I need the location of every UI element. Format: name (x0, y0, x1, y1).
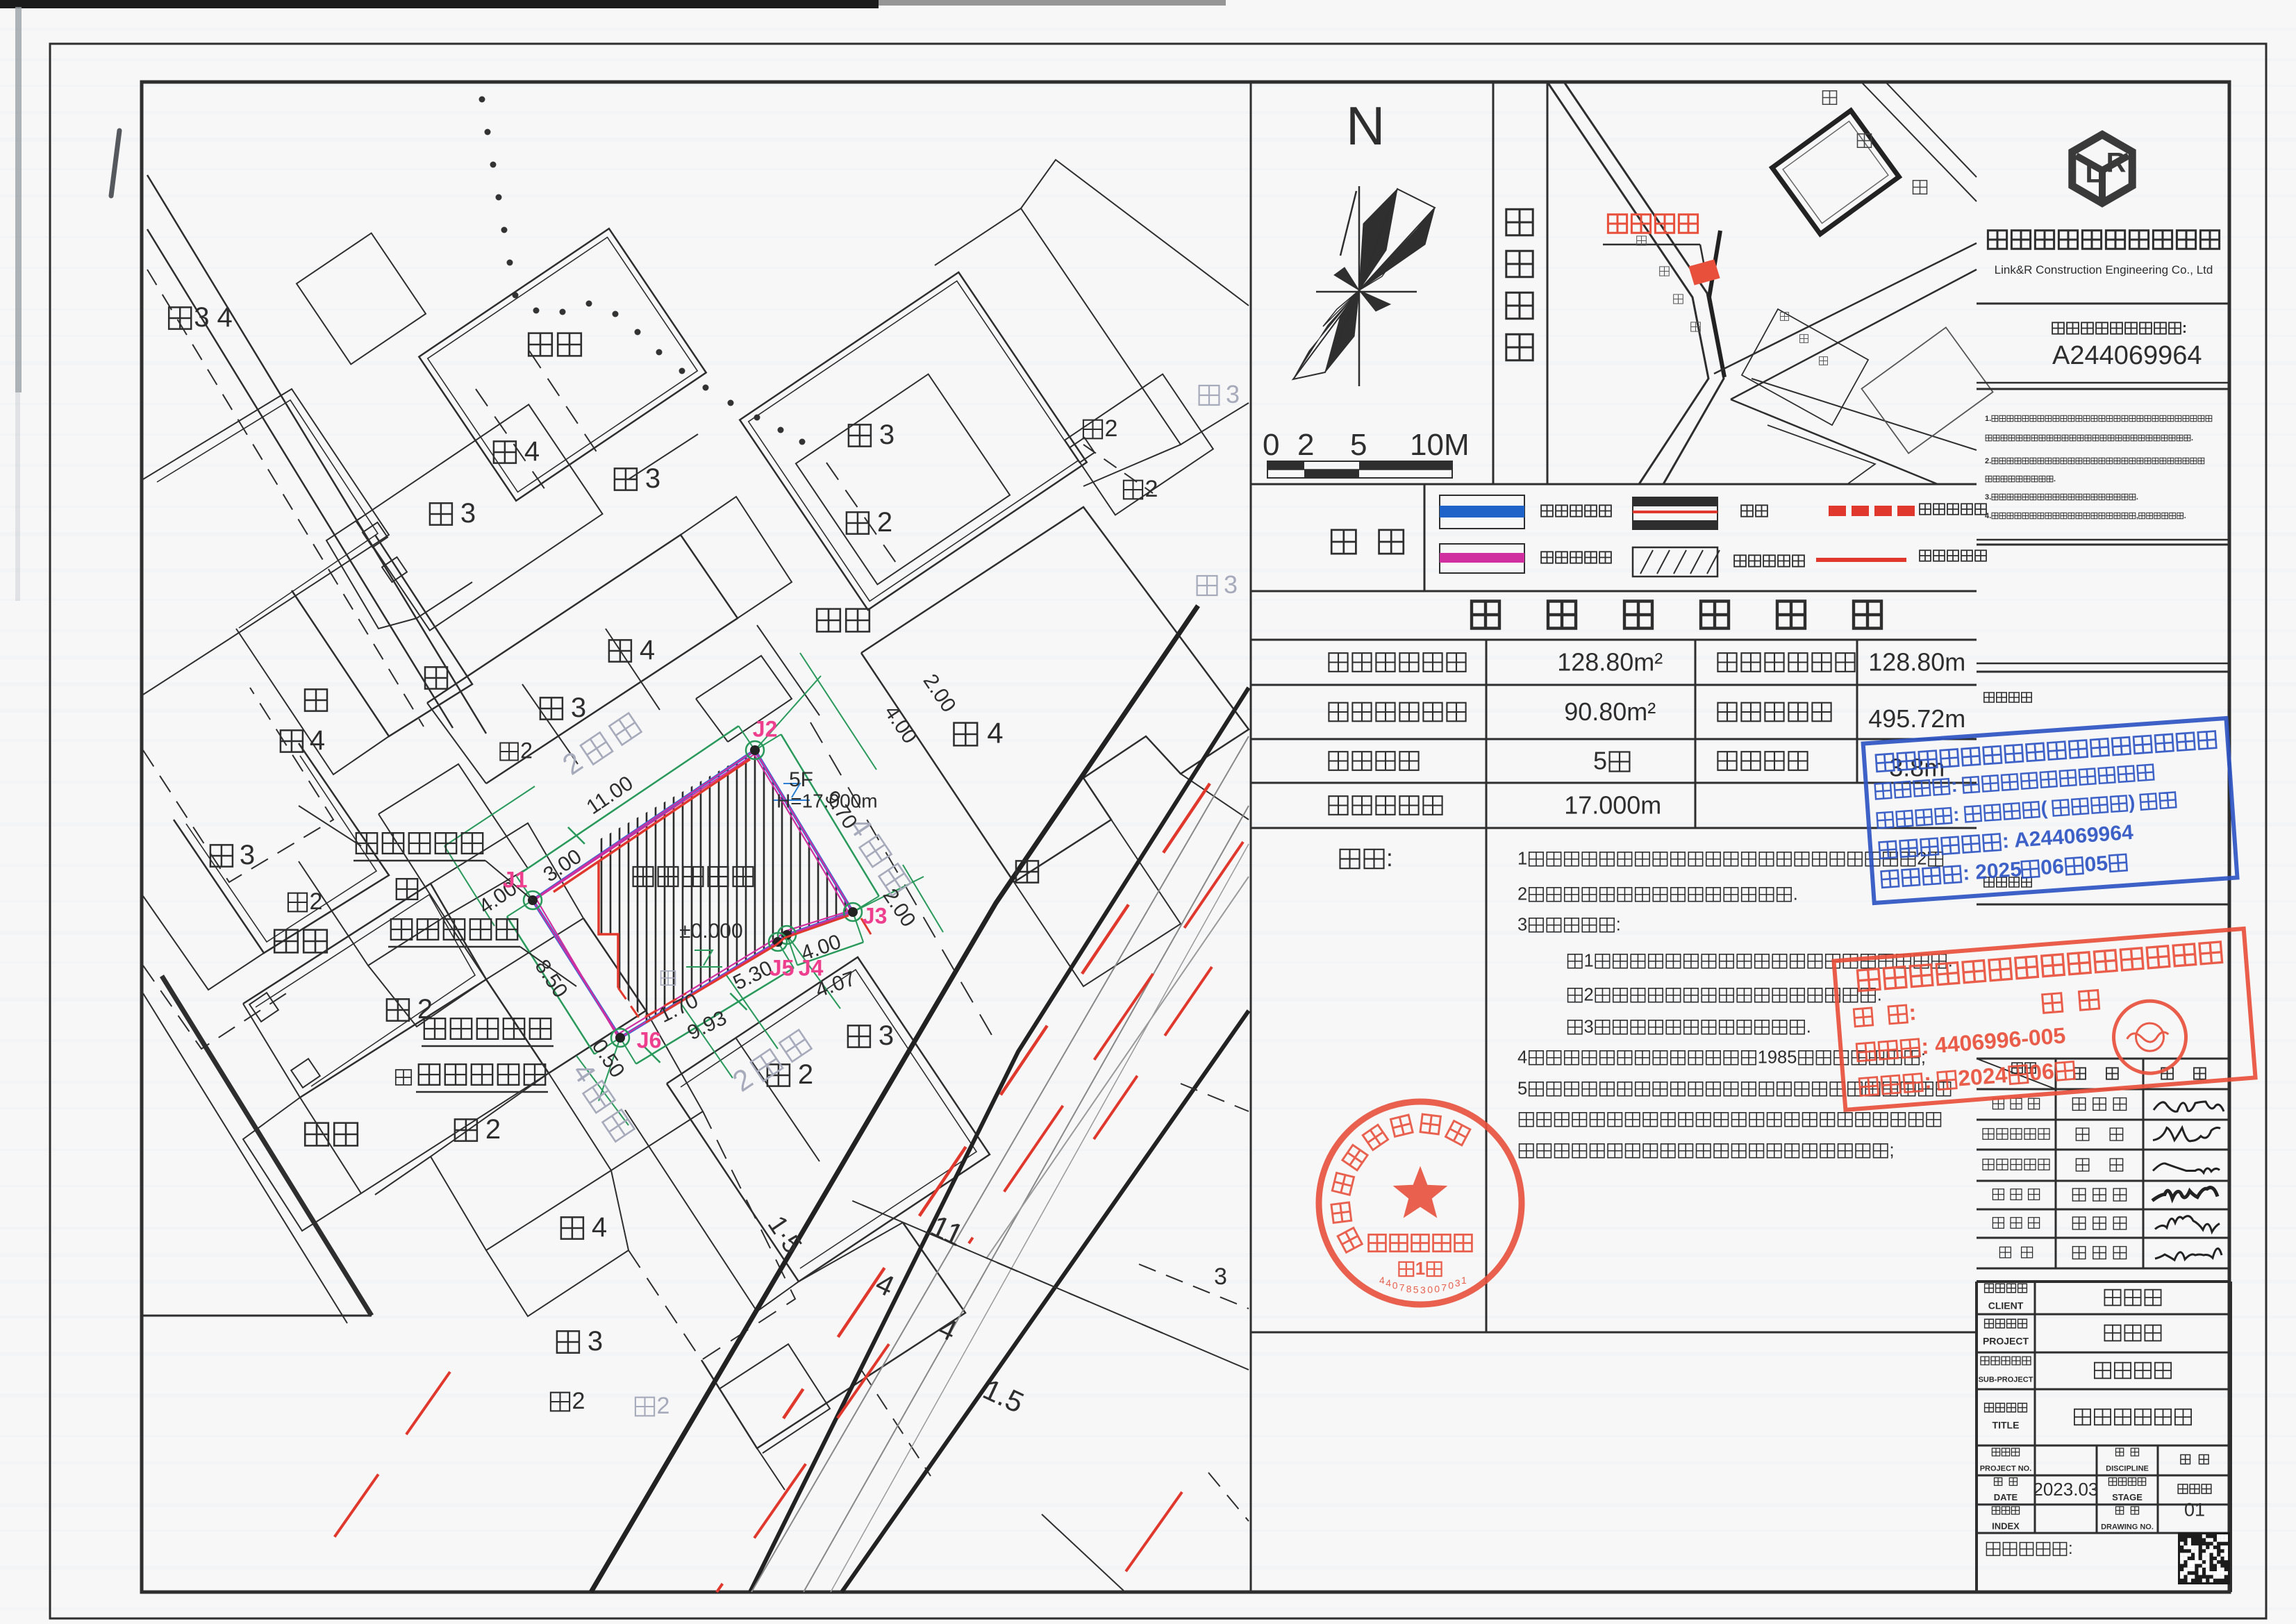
svg-text:DATE: DATE (1994, 1492, 2018, 1502)
svg-text:2: 2 (877, 507, 892, 538)
svg-text:J2: J2 (753, 717, 778, 742)
svg-text:Link&R Construction Engineerin: Link&R Construction Engineering Co., Ltd (1995, 263, 2213, 276)
svg-text:5: 5 (1413, 1284, 1419, 1295)
svg-text:3: 3 (879, 1020, 894, 1051)
svg-text:5F: 5F (789, 768, 813, 791)
svg-text:.: . (2054, 475, 2056, 483)
svg-text:H=17.000m: H=17.000m (776, 790, 878, 811)
svg-text:2: 2 (1297, 428, 1314, 462)
svg-text:3: 3 (1214, 1263, 1227, 1290)
svg-text:J4: J4 (799, 956, 824, 981)
svg-text:01: 01 (2184, 1500, 2205, 1521)
svg-text:J6: J6 (637, 1028, 662, 1053)
svg-text:R: R (2106, 148, 2127, 179)
svg-text:2.: 2. (1985, 457, 1991, 465)
svg-text:495.72m: 495.72m (1868, 704, 1965, 733)
svg-text:2: 2 (1517, 884, 1527, 904)
svg-text:0: 0 (1392, 1280, 1398, 1291)
svg-text:128.80m: 128.80m (1868, 647, 1965, 676)
svg-text:06: 06 (2029, 1059, 2055, 1086)
svg-text:4: 4 (640, 635, 655, 665)
svg-text:2: 2 (520, 738, 533, 763)
svg-text:.: . (2184, 512, 2186, 520)
svg-text:3: 3 (645, 463, 660, 494)
svg-text:2023.03: 2023.03 (2033, 1479, 2098, 1500)
svg-text:1.: 1. (1985, 415, 1991, 423)
svg-text:: 2025: : 2025 (1962, 858, 2022, 885)
svg-text:05: 05 (2083, 852, 2108, 876)
svg-text:DRAWING NO.: DRAWING NO. (2101, 1523, 2154, 1532)
svg-text:.: . (2191, 434, 2193, 442)
svg-text:3: 3 (1517, 915, 1527, 934)
svg-text:1: 1 (1415, 1258, 1425, 1279)
svg-text:8: 8 (1406, 1283, 1412, 1294)
svg-text:06: 06 (2040, 855, 2065, 879)
svg-text:4: 4 (310, 725, 325, 756)
svg-text:2: 2 (798, 1059, 813, 1090)
svg-text:7: 7 (1399, 1282, 1405, 1293)
svg-text:3.: 3. (1985, 493, 1991, 502)
svg-text:±0.000: ±0.000 (679, 920, 743, 943)
svg-text:0: 0 (1434, 1283, 1440, 1294)
svg-text:.: . (1948, 951, 1953, 970)
svg-text:,: , (2136, 512, 2138, 520)
svg-text:5: 5 (1350, 428, 1367, 462)
svg-text:90.80m²: 90.80m² (1564, 697, 1656, 726)
svg-text:128.80m²: 128.80m² (1557, 647, 1663, 676)
svg-text:3: 3 (1420, 1284, 1426, 1295)
svg-text::: : (1386, 845, 1393, 872)
svg-text::: : (1616, 915, 1621, 934)
svg-text:J5: J5 (770, 956, 795, 981)
svg-text:STAGE: STAGE (2112, 1492, 2143, 1502)
svg-text:2: 2 (417, 994, 433, 1025)
svg-text:4: 4 (1386, 1277, 1391, 1289)
svg-text::: : (2182, 320, 2187, 336)
svg-text:.: . (2136, 493, 2138, 502)
svg-text:;: ; (1890, 1141, 1895, 1160)
svg-text:N: N (1346, 95, 1385, 156)
svg-text:5: 5 (1517, 1079, 1527, 1098)
svg-text:0: 0 (1427, 1284, 1433, 1295)
svg-text:4: 4 (592, 1212, 607, 1243)
svg-text:1: 1 (1584, 951, 1594, 970)
svg-text:0: 0 (1448, 1280, 1454, 1291)
svg-text:1: 1 (1517, 849, 1527, 868)
svg-text:.: . (1806, 1017, 1811, 1036)
svg-text:L: L (2086, 158, 2102, 189)
svg-text:2: 2 (310, 888, 323, 915)
svg-text:INDEX: INDEX (1992, 1521, 2020, 1532)
svg-text:PROJECT NO.: PROJECT NO. (1980, 1465, 2032, 1473)
svg-text:3: 3 (588, 1326, 603, 1357)
svg-text:5: 5 (1593, 746, 1607, 774)
svg-text:TITLE: TITLE (1993, 1420, 2020, 1431)
svg-text:3: 3 (571, 693, 586, 723)
svg-text:1985: 1985 (1758, 1047, 1797, 1067)
svg-text:1: 1 (1461, 1275, 1467, 1286)
svg-text:3: 3 (1224, 570, 1238, 599)
svg-text:J3: J3 (863, 904, 888, 929)
svg-text:7: 7 (1441, 1282, 1447, 1293)
svg-text:3: 3 (879, 420, 895, 450)
svg-text:4: 4 (987, 717, 1003, 749)
svg-text:2: 2 (1584, 985, 1594, 1004)
svg-text:J1: J1 (503, 868, 528, 893)
svg-text:3: 3 (1226, 380, 1240, 408)
svg-text:0: 0 (1263, 428, 1279, 462)
svg-text:2: 2 (1145, 476, 1158, 502)
svg-text:10M: 10M (1410, 428, 1470, 462)
svg-text:SUB-PROJECT: SUB-PROJECT (1979, 1376, 2033, 1384)
svg-text:2: 2 (572, 1388, 585, 1414)
svg-text:3: 3 (1455, 1277, 1461, 1289)
svg-text:.: . (1793, 884, 1798, 904)
svg-text:A244069964: A244069964 (2052, 341, 2202, 370)
svg-text:3 4: 3 4 (194, 302, 233, 333)
svg-text:4: 4 (524, 436, 540, 467)
svg-text:3: 3 (240, 840, 255, 870)
svg-text:2: 2 (657, 1393, 670, 1419)
svg-text:17.000m: 17.000m (1564, 790, 1661, 819)
svg-text::: : (2068, 1539, 2073, 1558)
svg-text:2: 2 (1105, 415, 1118, 442)
svg-text:2024: 2024 (1957, 1062, 2008, 1091)
svg-text:2: 2 (485, 1114, 501, 1145)
svg-text:DISCIPLINE: DISCIPLINE (2106, 1465, 2149, 1473)
svg-text:4: 4 (1517, 1047, 1527, 1067)
svg-text:CLIENT: CLIENT (1988, 1300, 2024, 1311)
svg-text:3: 3 (1584, 1017, 1594, 1036)
svg-text:4: 4 (1379, 1275, 1385, 1286)
svg-text:PROJECT: PROJECT (1983, 1336, 2029, 1347)
svg-text:3: 3 (460, 498, 476, 529)
svg-text:4.: 4. (1985, 512, 1991, 520)
